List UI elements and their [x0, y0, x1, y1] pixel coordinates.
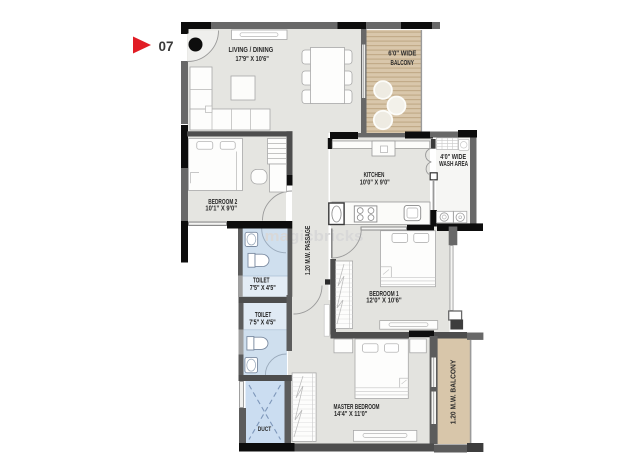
svg-text:1.20 M.W. PASSAGE: 1.20 M.W. PASSAGE	[305, 225, 312, 275]
svg-text:6'0" WIDE: 6'0" WIDE	[388, 48, 416, 57]
svg-text:7'5" X 4'5": 7'5" X 4'5"	[249, 317, 276, 326]
svg-text:14'4" X 11'0": 14'4" X 11'0"	[334, 409, 368, 418]
svg-text:07: 07	[159, 39, 174, 54]
svg-text:WASH AREA: WASH AREA	[439, 159, 468, 168]
svg-text:10'0" X 9'0": 10'0" X 9'0"	[360, 177, 390, 186]
svg-text:7'5" X 4'5": 7'5" X 4'5"	[250, 283, 276, 292]
svg-text:BALCONY: BALCONY	[391, 58, 414, 67]
svg-text:10'1" X 9'0": 10'1" X 9'0"	[205, 204, 237, 213]
svg-text:magicbricks: magicbricks	[265, 229, 364, 245]
svg-text:DUCT: DUCT	[258, 426, 272, 433]
svg-text:12'0" X 10'6": 12'0" X 10'6"	[366, 296, 402, 305]
svg-text:17'9" X 10'6": 17'9" X 10'6"	[236, 54, 270, 63]
svg-text:1.20 M.W. BALCONY: 1.20 M.W. BALCONY	[451, 359, 458, 424]
svg-text:LIVING / DINING: LIVING / DINING	[229, 45, 274, 54]
